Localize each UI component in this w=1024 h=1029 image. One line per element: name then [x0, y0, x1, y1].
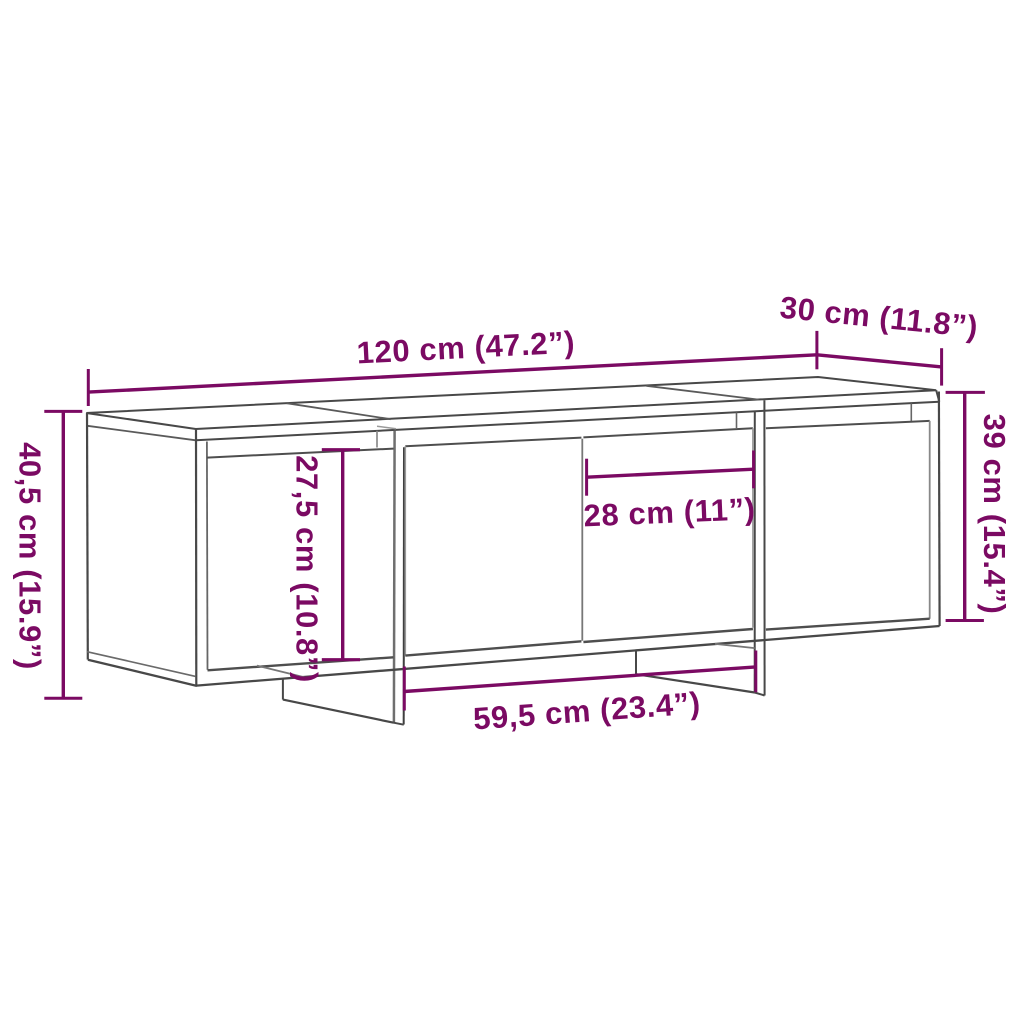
svg-text:28 cm (11”): 28 cm (11”)	[583, 491, 756, 533]
svg-text:39 cm (15.4”): 39 cm (15.4”)	[977, 414, 1012, 615]
svg-text:40,5 cm (15.9”): 40,5 cm (15.9”)	[13, 442, 48, 670]
svg-text:27,5 cm (10.8”): 27,5 cm (10.8”)	[290, 455, 325, 683]
